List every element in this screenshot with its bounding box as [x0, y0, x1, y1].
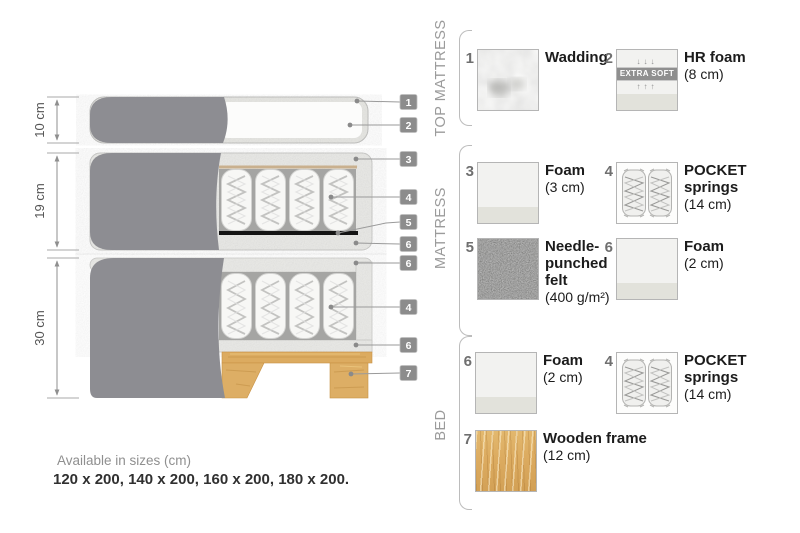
item-detail: (14 cm) — [684, 196, 758, 213]
fabric-cover-bed — [90, 258, 225, 398]
legend-item-wadding: 1 Wadding — [460, 49, 608, 111]
callout-tags: 1 2 3 4 5 6 6 4 6 7 — [400, 95, 417, 381]
callout-tag-4: 4 — [400, 190, 417, 205]
pocket-springs-swatch — [616, 162, 678, 224]
availability-note: Available in sizes (cm) — [57, 453, 191, 468]
item-name: POCKET springs — [684, 162, 758, 196]
infographic-page: 10 cm 19 cm 30 cm 1 2 3 — [0, 0, 800, 533]
item-detail: (12 cm) — [543, 447, 647, 464]
legend-item-needle-punched-felt: 5 Needle-punched felt (400 g/m²) — [460, 238, 619, 306]
dim-label-top-mattress: 10 cm — [32, 102, 47, 137]
item-name: HR foam — [684, 49, 746, 66]
item-name: Foam — [545, 162, 585, 179]
item-number: 6 — [458, 353, 472, 370]
item-detail: (14 cm) — [684, 386, 758, 403]
item-number: 3 — [460, 163, 474, 180]
foam-swatch — [616, 238, 678, 300]
legend-item-foam-3cm: 3 Foam (3 cm) — [460, 162, 585, 224]
item-number: 6 — [599, 239, 613, 256]
item-number: 4 — [599, 353, 613, 370]
legend-item-foam-2cm: 6 Foam (2 cm) — [599, 238, 724, 300]
svg-text:5: 5 — [406, 217, 412, 229]
legend-item-hr-foam: 2 ↓↓↓ EXTRA SOFT ↑↑↑ HR foam (8 cm) — [599, 49, 746, 111]
fabric-cover-mattress — [90, 153, 221, 250]
legend-item-bed-pocket-springs: 4 POCKET springs (14 cm) — [599, 352, 758, 414]
felt-swatch — [477, 238, 539, 300]
item-detail: (2 cm) — [543, 369, 583, 386]
dim-label-bed: 30 cm — [32, 310, 47, 345]
wadding-swatch — [477, 49, 539, 111]
item-number: 7 — [458, 431, 472, 448]
svg-text:6: 6 — [406, 340, 412, 352]
callout-tag-6b: 6 — [400, 256, 417, 271]
compress-arrows-down-icon: ↓↓↓ — [637, 57, 658, 66]
item-name: Foam — [684, 238, 724, 255]
section-title-mattress: MATTRESS — [433, 187, 449, 269]
section-title-top-mattress: TOP MATTRESS — [433, 19, 449, 136]
svg-text:4: 4 — [406, 302, 412, 314]
block-mattress — [90, 153, 372, 250]
extra-soft-badge: EXTRA SOFT — [616, 67, 678, 81]
foam-swatch — [475, 352, 537, 414]
svg-text:1: 1 — [406, 97, 412, 109]
svg-text:3: 3 — [406, 154, 412, 166]
legend-item-bed-foam: 6 Foam (2 cm) — [458, 352, 583, 414]
svg-text:6: 6 — [406, 239, 412, 251]
wood-swatch — [475, 430, 537, 492]
dim-label-mattress: 19 cm — [32, 183, 47, 218]
foam-swatch — [477, 162, 539, 224]
section-title-bed: BED — [433, 409, 449, 440]
svg-text:4: 4 — [406, 192, 412, 204]
pocket-springs-swatch — [616, 352, 678, 414]
item-name: Foam — [543, 352, 583, 369]
item-number: 4 — [599, 163, 613, 180]
svg-text:6: 6 — [406, 258, 412, 270]
callout-tag-2: 2 — [400, 118, 417, 133]
item-number: 5 — [460, 239, 474, 256]
callout-tag-5: 5 — [400, 215, 417, 230]
dimension-arrows — [47, 97, 79, 398]
block-top-mattress — [90, 97, 368, 143]
legend-item-pocket-springs: 4 POCKET springs (14 cm) — [599, 162, 758, 224]
legend-item-wooden-frame: 7 Wooden frame (12 cm) — [458, 430, 647, 492]
item-name: POCKET springs — [684, 352, 758, 386]
item-detail: (3 cm) — [545, 179, 585, 196]
available-sizes: 120 x 200, 140 x 200, 160 x 200, 180 x 2… — [53, 471, 349, 488]
item-name: Wooden frame — [543, 430, 647, 447]
svg-text:7: 7 — [406, 368, 412, 380]
item-detail: (2 cm) — [684, 255, 724, 272]
callout-tag-6c: 6 — [400, 338, 417, 353]
item-number: 1 — [460, 50, 474, 67]
item-detail: (8 cm) — [684, 66, 746, 83]
fabric-cover-top-mattress — [90, 97, 228, 143]
callout-tag-3: 3 — [400, 152, 417, 167]
block-bed — [90, 258, 372, 398]
item-number: 2 — [599, 50, 613, 67]
callout-tag-6: 6 — [400, 237, 417, 252]
callout-tag-4b: 4 — [400, 300, 417, 315]
hr-foam-swatch: ↓↓↓ EXTRA SOFT ↑↑↑ — [616, 49, 678, 111]
compress-arrows-up-icon: ↑↑↑ — [637, 82, 658, 91]
callout-tag-7: 7 — [400, 366, 417, 381]
svg-text:2: 2 — [406, 120, 412, 132]
callout-tag-1: 1 — [400, 95, 417, 110]
